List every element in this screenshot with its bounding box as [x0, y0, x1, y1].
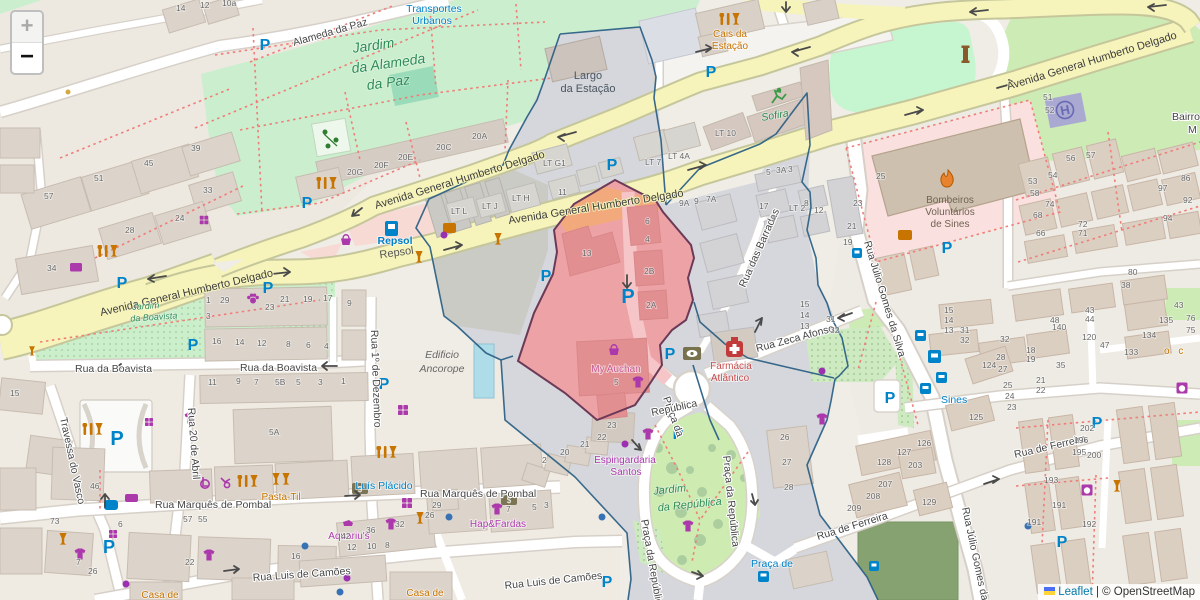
svg-text:P: P — [541, 268, 552, 285]
svg-text:P: P — [621, 286, 634, 308]
svg-text:27: 27 — [782, 457, 792, 467]
svg-text:191: 191 — [1027, 517, 1041, 527]
svg-text:28: 28 — [996, 352, 1006, 362]
svg-text:P: P — [607, 157, 618, 174]
svg-text:LT 7: LT 7 — [645, 157, 661, 167]
svg-text:6: 6 — [645, 216, 650, 226]
svg-text:5A: 5A — [269, 427, 280, 437]
svg-text:9A: 9A — [679, 198, 690, 208]
svg-text:124: 124 — [982, 360, 996, 370]
svg-text:86: 86 — [1181, 173, 1191, 183]
svg-text:135: 135 — [1159, 315, 1173, 325]
svg-text:Farmácia: Farmácia — [710, 361, 752, 372]
svg-text:Bombeiros: Bombeiros — [926, 195, 974, 206]
svg-text:26: 26 — [780, 432, 790, 442]
svg-text:de Sines: de Sines — [931, 219, 970, 230]
svg-text:Transportes: Transportes — [406, 3, 462, 15]
svg-text:My Auchan: My Auchan — [591, 364, 640, 375]
svg-text:20F: 20F — [374, 160, 389, 170]
svg-text:54: 54 — [1048, 170, 1058, 180]
svg-text:31: 31 — [826, 314, 836, 324]
svg-text:29: 29 — [432, 500, 442, 510]
svg-text:9: 9 — [347, 298, 352, 308]
svg-text:12: 12 — [257, 338, 267, 348]
svg-text:11: 11 — [208, 377, 217, 387]
svg-text:Urbanos: Urbanos — [412, 15, 452, 27]
svg-text:200: 200 — [1087, 450, 1101, 460]
svg-text:16: 16 — [291, 551, 301, 561]
svg-text:12: 12 — [814, 205, 824, 215]
svg-text:33: 33 — [203, 185, 213, 195]
svg-text:Estação: Estação — [712, 41, 749, 52]
svg-text:5: 5 — [296, 377, 301, 387]
svg-text:3: 3 — [206, 311, 211, 321]
svg-text:97: 97 — [1158, 183, 1168, 193]
svg-text:Ancorope: Ancorope — [419, 363, 465, 375]
svg-text:46: 46 — [90, 481, 100, 491]
svg-text:207: 207 — [878, 479, 892, 489]
svg-text:43: 43 — [1174, 300, 1184, 310]
svg-text:LT G1: LT G1 — [543, 158, 566, 168]
svg-text:Bairro: Bairro — [1172, 111, 1200, 123]
svg-text:14: 14 — [176, 3, 186, 13]
svg-text:21: 21 — [847, 221, 857, 231]
svg-text:13: 13 — [944, 325, 954, 335]
svg-text:21: 21 — [580, 439, 590, 449]
svg-text:Rua da Boavista: Rua da Boavista — [75, 363, 152, 375]
svg-text:P: P — [665, 346, 676, 363]
svg-text:P: P — [263, 280, 274, 297]
svg-text:Largo: Largo — [574, 70, 602, 82]
svg-text:11: 11 — [558, 187, 567, 197]
svg-text:10: 10 — [367, 541, 377, 551]
svg-text:P: P — [706, 64, 717, 81]
svg-text:27: 27 — [998, 364, 1008, 374]
svg-text:2B: 2B — [644, 266, 655, 276]
svg-text:5: 5 — [614, 377, 619, 387]
svg-text:LT 4A: LT 4A — [668, 151, 690, 161]
svg-text:23: 23 — [607, 420, 617, 430]
svg-text:23: 23 — [265, 302, 275, 312]
svg-text:74: 74 — [1045, 199, 1055, 209]
svg-text:128: 128 — [877, 457, 891, 467]
svg-text:45: 45 — [144, 158, 154, 168]
svg-text:P: P — [188, 337, 199, 354]
svg-text:20C: 20C — [436, 142, 452, 152]
svg-text:19: 19 — [843, 237, 853, 247]
svg-text:47: 47 — [1100, 340, 1110, 350]
svg-text:22: 22 — [185, 557, 195, 567]
svg-text:17: 17 — [323, 293, 333, 303]
svg-text:71: 71 — [1078, 228, 1088, 238]
svg-text:191: 191 — [1052, 500, 1066, 510]
svg-text:24: 24 — [175, 213, 185, 223]
svg-text:57: 57 — [1086, 150, 1096, 160]
svg-text:2: 2 — [542, 455, 547, 465]
svg-text:14: 14 — [235, 337, 245, 347]
svg-text:LT 2: LT 2 — [789, 203, 805, 213]
svg-text:51: 51 — [94, 173, 104, 183]
svg-text:120: 120 — [1082, 332, 1096, 342]
svg-text:39: 39 — [191, 143, 201, 153]
svg-text:56: 56 — [1066, 153, 1076, 163]
svg-text:127: 127 — [897, 447, 911, 457]
svg-text:P: P — [117, 275, 128, 292]
svg-text:15: 15 — [944, 305, 954, 315]
svg-text:58: 58 — [1030, 188, 1040, 198]
svg-text:Espingardaria: Espingardaria — [594, 455, 656, 466]
svg-text:12: 12 — [200, 0, 210, 10]
svg-text:LT H: LT H — [512, 193, 530, 203]
svg-text:53: 53 — [1028, 176, 1038, 186]
svg-text:203: 203 — [908, 460, 922, 470]
svg-text:193: 193 — [1044, 475, 1058, 485]
svg-text:25: 25 — [1003, 380, 1013, 390]
svg-text:126: 126 — [917, 438, 931, 448]
svg-text:38: 38 — [1121, 280, 1131, 290]
svg-text:28: 28 — [784, 482, 794, 492]
svg-text:134: 134 — [1142, 330, 1156, 340]
svg-text:7: 7 — [76, 557, 81, 567]
svg-text:4: 4 — [324, 341, 329, 351]
svg-text:16: 16 — [212, 336, 222, 346]
svg-text:20A: 20A — [472, 131, 487, 141]
svg-text:57: 57 — [44, 191, 54, 201]
svg-text:Santos: Santos — [610, 467, 641, 478]
svg-text:42: 42 — [341, 531, 351, 541]
svg-text:14: 14 — [800, 310, 810, 320]
svg-text:3: 3 — [544, 500, 549, 510]
svg-text:Cais da: Cais da — [713, 29, 747, 40]
svg-text:3A: 3A — [776, 165, 787, 175]
svg-text:P: P — [260, 37, 271, 54]
svg-text:Rua Marquês de Pombal: Rua Marquês de Pombal — [420, 488, 536, 500]
svg-text:Pasta-Til: Pasta-Til — [261, 492, 300, 503]
svg-text:19: 19 — [1026, 354, 1036, 364]
svg-text:Praça de: Praça de — [751, 558, 793, 570]
svg-text:9: 9 — [771, 213, 776, 223]
svg-text:66: 66 — [1036, 228, 1046, 238]
svg-text:55: 55 — [198, 514, 208, 524]
svg-text:75: 75 — [1186, 325, 1196, 335]
svg-text:3: 3 — [788, 164, 793, 174]
svg-text:35: 35 — [1056, 360, 1066, 370]
svg-text:192: 192 — [1082, 519, 1096, 529]
svg-text:M: M — [1188, 124, 1197, 136]
svg-text:13: 13 — [582, 248, 592, 258]
svg-text:68: 68 — [1033, 210, 1043, 220]
svg-text:20E: 20E — [398, 152, 413, 162]
svg-text:20: 20 — [560, 447, 570, 457]
svg-text:21: 21 — [1036, 375, 1046, 385]
svg-text:19: 19 — [303, 294, 313, 304]
svg-text:da Estação: da Estação — [560, 83, 615, 95]
svg-text:17: 17 — [759, 201, 769, 211]
svg-text:P: P — [110, 428, 123, 450]
svg-text:209: 209 — [847, 503, 861, 513]
svg-text:P: P — [602, 574, 613, 591]
svg-text:14: 14 — [944, 315, 954, 325]
svg-text:76: 76 — [1186, 313, 1196, 323]
svg-text:28: 28 — [125, 225, 135, 235]
svg-text:6: 6 — [306, 340, 311, 350]
svg-text:57: 57 — [183, 514, 193, 524]
svg-text:8: 8 — [385, 540, 390, 550]
svg-text:23: 23 — [1007, 402, 1017, 412]
svg-text:3: 3 — [318, 377, 323, 387]
svg-text:133: 133 — [1124, 347, 1138, 357]
svg-text:P: P — [942, 240, 953, 257]
svg-text:Jardim: Jardim — [131, 300, 160, 312]
svg-text:Hap&Fardas: Hap&Fardas — [470, 519, 526, 530]
svg-text:12: 12 — [347, 542, 357, 552]
svg-text:1: 1 — [206, 295, 211, 305]
svg-text:94: 94 — [1163, 213, 1173, 223]
svg-text:Rua da Boavista: Rua da Boavista — [240, 362, 317, 374]
svg-text:125: 125 — [969, 412, 983, 422]
svg-text:208: 208 — [866, 491, 880, 501]
svg-text:92: 92 — [1183, 195, 1193, 205]
svg-text:29: 29 — [220, 295, 230, 305]
svg-text:Luís Plácido: Luís Plácido — [355, 480, 412, 492]
svg-text:51: 51 — [1043, 92, 1053, 102]
svg-text:LT J: LT J — [482, 201, 498, 211]
svg-text:31: 31 — [960, 325, 970, 335]
svg-text:P: P — [885, 390, 896, 407]
svg-text:7: 7 — [254, 377, 259, 387]
svg-text:7A: 7A — [706, 194, 717, 204]
svg-text:Sines: Sines — [941, 394, 967, 406]
svg-text:Voluntários: Voluntários — [925, 207, 974, 218]
svg-text:P: P — [302, 195, 313, 212]
svg-text:Casa de: Casa de — [141, 590, 179, 600]
svg-text:5B: 5B — [275, 377, 286, 387]
svg-text:2A: 2A — [646, 300, 657, 310]
svg-text:21: 21 — [280, 294, 290, 304]
svg-text:48: 48 — [1050, 315, 1060, 325]
svg-text:Atlântico: Atlântico — [711, 373, 750, 384]
svg-text:22: 22 — [597, 432, 607, 442]
svg-text:36: 36 — [366, 525, 376, 535]
svg-text:34: 34 — [47, 263, 57, 273]
svg-text:32: 32 — [395, 519, 405, 529]
svg-text:80: 80 — [1128, 267, 1138, 277]
svg-text:Rua Marquês de Pombal: Rua Marquês de Pombal — [155, 499, 271, 511]
svg-text:P: P — [1057, 534, 1068, 551]
svg-text:15: 15 — [800, 299, 810, 309]
svg-text:5: 5 — [532, 502, 537, 512]
svg-text:Casa de: Casa de — [406, 588, 444, 599]
svg-text:202: 202 — [1080, 423, 1094, 433]
svg-text:129: 129 — [922, 497, 936, 507]
svg-text:9: 9 — [694, 196, 699, 206]
svg-text:9: 9 — [236, 376, 241, 386]
svg-text:26: 26 — [425, 510, 435, 520]
svg-text:8: 8 — [286, 339, 291, 349]
svg-text:5: 5 — [766, 167, 771, 177]
svg-text:6: 6 — [118, 519, 123, 529]
svg-text:26: 26 — [88, 566, 98, 576]
svg-text:o c: o c — [1164, 346, 1186, 357]
svg-text:73: 73 — [50, 516, 60, 526]
svg-text:195: 195 — [1072, 447, 1086, 457]
svg-text:32: 32 — [830, 325, 840, 335]
svg-text:13: 13 — [800, 321, 810, 331]
svg-text:196: 196 — [1074, 435, 1088, 445]
svg-text:52: 52 — [1045, 105, 1055, 115]
svg-text:4: 4 — [645, 234, 650, 244]
svg-text:24: 24 — [1005, 391, 1015, 401]
svg-text:P: P — [103, 537, 115, 557]
svg-text:7: 7 — [506, 504, 511, 514]
svg-text:20G: 20G — [347, 167, 363, 177]
svg-text:32: 32 — [960, 335, 970, 345]
svg-text:25: 25 — [876, 171, 886, 181]
svg-text:LT 10: LT 10 — [715, 128, 736, 138]
svg-text:LT L: LT L — [451, 206, 467, 216]
svg-text:32: 32 — [1000, 334, 1010, 344]
svg-text:Edificio: Edificio — [425, 349, 459, 361]
svg-text:22: 22 — [1036, 385, 1046, 395]
svg-text:1: 1 — [341, 376, 346, 386]
svg-text:10a: 10a — [222, 0, 236, 8]
svg-text:23: 23 — [853, 198, 863, 208]
svg-text:15: 15 — [10, 388, 20, 398]
svg-text:44: 44 — [1085, 314, 1095, 324]
